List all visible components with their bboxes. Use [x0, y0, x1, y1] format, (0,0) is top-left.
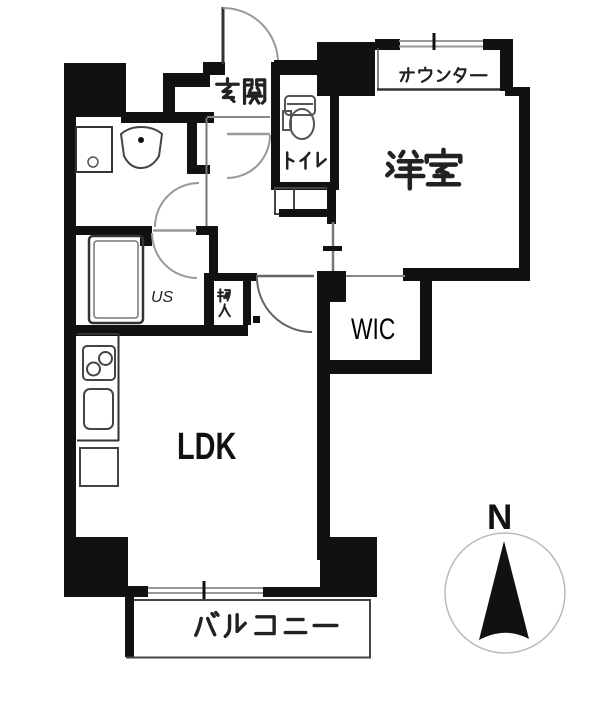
svg-text:WIC: WIC	[351, 312, 395, 346]
svg-text:N: N	[487, 498, 512, 537]
svg-text:US: US	[151, 289, 174, 306]
svg-text:LDK: LDK	[177, 425, 237, 468]
